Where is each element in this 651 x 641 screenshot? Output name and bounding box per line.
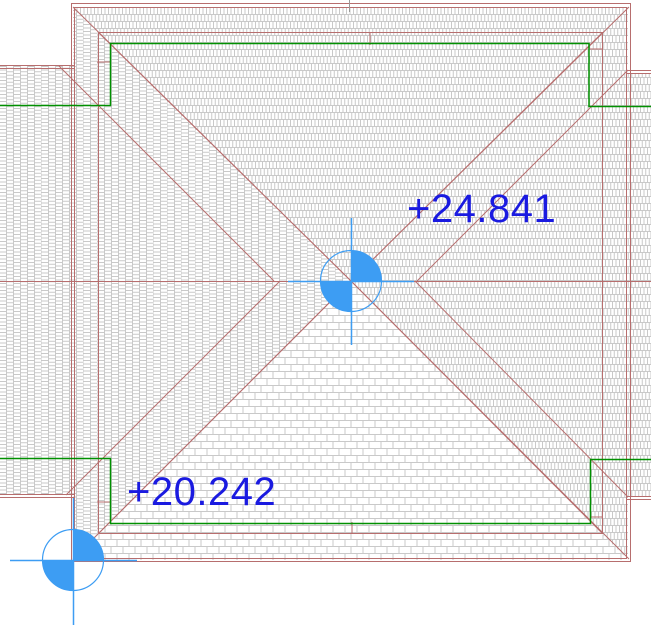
- roof-plan-view[interactable]: +24.841 +20.242: [0, 0, 651, 641]
- roof-wing-left: [0, 66, 73, 495]
- spot-elevation-upper-label[interactable]: +24.841: [407, 187, 556, 231]
- roof-wing-right: [628, 73, 651, 497]
- spot-elevation-lower-label[interactable]: +20.242: [127, 470, 276, 514]
- drawing-canvas[interactable]: +24.841 +20.242: [0, 0, 651, 641]
